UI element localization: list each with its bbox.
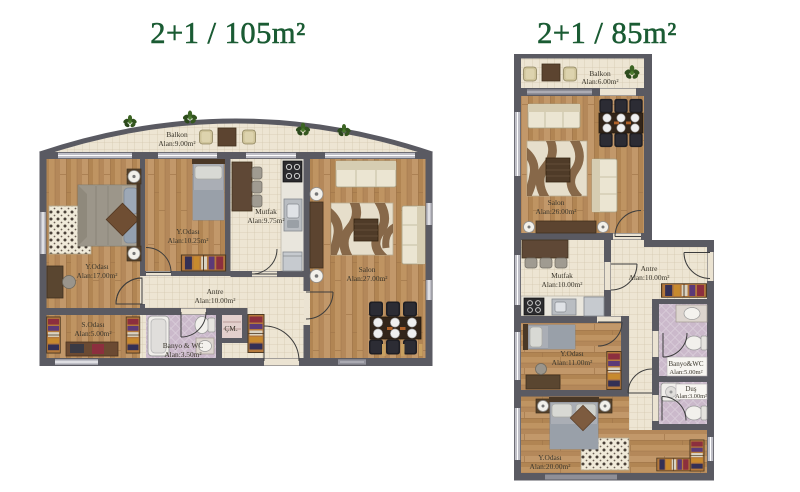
svg-text:Alan:10.00m²: Alan:10.00m² bbox=[628, 273, 670, 282]
svg-text:Banyo&WC: Banyo&WC bbox=[669, 360, 704, 368]
svg-text:Alan:6.00m²: Alan:6.00m² bbox=[581, 77, 619, 86]
svg-text:Y.Odası: Y.Odası bbox=[176, 227, 199, 236]
svg-text:Alan:3.00m²: Alan:3.00m² bbox=[675, 393, 707, 400]
svg-text:Alan:10.00m²: Alan:10.00m² bbox=[194, 296, 236, 305]
svg-text:Alan:17.00m²: Alan:17.00m² bbox=[76, 271, 118, 280]
svg-text:Balkon: Balkon bbox=[166, 130, 188, 139]
svg-text:Antre: Antre bbox=[641, 264, 659, 273]
svg-text:Alan:26.00m²: Alan:26.00m² bbox=[535, 207, 577, 216]
svg-text:Alan:9.75m²: Alan:9.75m² bbox=[247, 216, 285, 225]
svg-text:Alan:3.50m²: Alan:3.50m² bbox=[164, 350, 202, 359]
svg-text:Antre: Antre bbox=[207, 287, 225, 296]
svg-text:Y.Odası: Y.Odası bbox=[560, 349, 583, 358]
svg-text:Alan:9.00m²: Alan:9.00m² bbox=[158, 139, 196, 148]
svg-text:Alan:5.00m²: Alan:5.00m² bbox=[669, 369, 702, 376]
svg-text:Banyo & WC: Banyo & WC bbox=[163, 341, 204, 350]
svg-text:Duş: Duş bbox=[686, 386, 697, 393]
svg-text:Alan:10.25m²: Alan:10.25m² bbox=[167, 236, 209, 245]
svg-text:Salon: Salon bbox=[548, 198, 565, 207]
svg-text:Alan:10.00m²: Alan:10.00m² bbox=[541, 280, 583, 289]
svg-text:Y.Odası: Y.Odası bbox=[85, 262, 108, 271]
svg-text:S.Odası: S.Odası bbox=[81, 320, 104, 329]
svg-text:Alan:5.00m²: Alan:5.00m² bbox=[74, 329, 112, 338]
svg-text:Alan:20.00m²: Alan:20.00m² bbox=[529, 462, 571, 471]
svg-text:Alan:11.00m²: Alan:11.00m² bbox=[552, 358, 594, 367]
svg-text:Mutfak: Mutfak bbox=[551, 271, 573, 280]
svg-text:2+1 / 85m²: 2+1 / 85m² bbox=[537, 16, 677, 50]
svg-text:Salon: Salon bbox=[359, 265, 376, 274]
svg-text:2+1 / 105m²: 2+1 / 105m² bbox=[150, 16, 306, 50]
svg-text:Mutfak: Mutfak bbox=[255, 207, 277, 216]
svg-text:ÇM.: ÇM. bbox=[224, 324, 238, 333]
svg-text:Alan:27.00m²: Alan:27.00m² bbox=[346, 274, 388, 283]
svg-text:Y.Odası: Y.Odası bbox=[538, 453, 561, 462]
